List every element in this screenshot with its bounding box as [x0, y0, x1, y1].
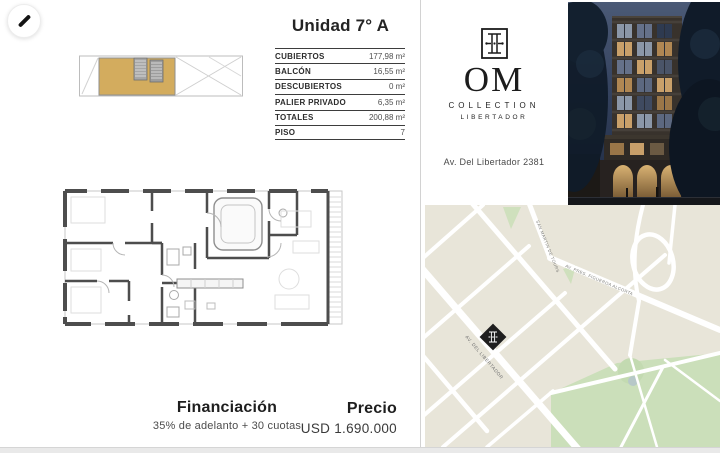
bottom-strip: [0, 447, 720, 453]
price-block: Precio USD 1.690.000: [277, 400, 397, 436]
spec-label: BALCÓN: [275, 67, 311, 76]
spec-row: TOTALES 200,88 m²: [275, 110, 405, 125]
pencil-icon: [17, 14, 30, 27]
spec-table: CUBIERTOS 177,98 m² BALCÓN 16,55 m² DESC…: [275, 48, 405, 140]
spec-label: PALIER PRIVADO: [275, 98, 346, 107]
building-photo: [568, 2, 720, 205]
spec-value: 16,55 m²: [373, 67, 405, 76]
floor-plan: [57, 183, 348, 332]
edit-button[interactable]: [7, 4, 41, 38]
spec-row: PALIER PRIVADO 6,35 m²: [275, 94, 405, 109]
brand-collection: COLLECTION: [425, 101, 563, 110]
spec-label: PISO: [275, 128, 295, 137]
spec-row: CUBIERTOS 177,98 m²: [275, 48, 405, 63]
spec-row: PISO 7: [275, 125, 405, 140]
spec-row: BALCÓN 16,55 m²: [275, 63, 405, 78]
om-emblem-icon: [481, 28, 508, 59]
brand-logo: OM COLLECTION LIBERTADOR: [425, 22, 563, 121]
spec-row: DESCUBIERTOS 0 m²: [275, 79, 405, 94]
spec-label: TOTALES: [275, 113, 314, 122]
price-label: Precio: [277, 400, 397, 418]
vertical-divider: [420, 0, 421, 447]
spec-label: DESCUBIERTOS: [275, 82, 342, 91]
brand-name: OM: [425, 62, 563, 97]
spec-value: 177,98 m²: [369, 52, 405, 61]
spec-value: 0 m²: [389, 82, 405, 91]
brand-line: LIBERTADOR: [425, 114, 563, 121]
unit-title: Unidad 7° A: [263, 16, 418, 36]
spec-label: CUBIERTOS: [275, 52, 325, 61]
key-plan-thumbnail: [78, 50, 245, 102]
brochure-page: Unidad 7° A CUBIERTOS 177,98 m² BALCÓN 1…: [0, 0, 720, 453]
brand-address: Av. Del Libertador 2381: [425, 157, 563, 167]
spec-value: 200,88 m²: [369, 113, 405, 122]
spec-value: 6,35 m²: [378, 98, 405, 107]
price-amount: USD 1.690.000: [277, 421, 397, 436]
location-map: SAN MARTIN DE TOURS AV. PRES. FIGUEROA A…: [425, 205, 720, 447]
spec-value: 7: [401, 128, 405, 137]
